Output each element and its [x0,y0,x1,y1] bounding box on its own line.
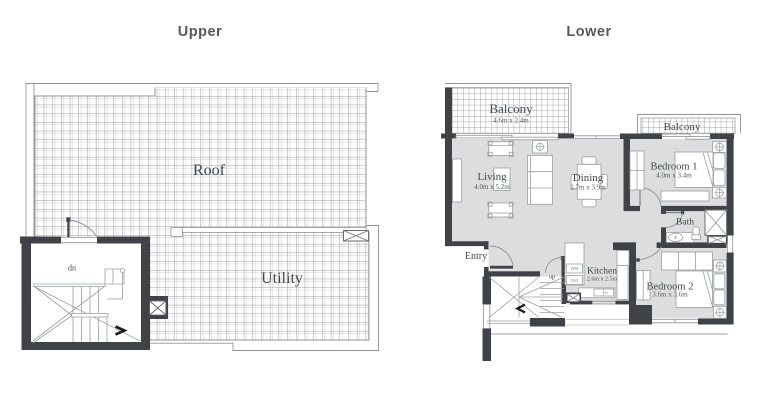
svg-text:Roof: Roof [193,162,226,179]
svg-text:3.6m x 3.6m: 3.6m x 3.6m [652,291,688,299]
svg-text:2.6m x 2.5m: 2.6m x 2.5m [587,277,618,283]
svg-text:Balcony: Balcony [664,121,701,133]
svg-text:Entry: Entry [465,251,487,262]
svg-text:Living: Living [477,171,507,183]
svg-text:Balcony: Balcony [489,101,533,116]
svg-text:Lower: Lower [566,24,611,40]
svg-text:Dining: Dining [573,172,604,184]
svg-text:WM: WM [571,266,579,271]
svg-text:DW: DW [571,278,579,283]
svg-text:up: up [549,274,556,281]
svg-text:Bath: Bath [676,218,694,228]
svg-text:4.0m x 3.4m: 4.0m x 3.4m [656,172,692,180]
svg-text:Kitchen: Kitchen [587,267,617,277]
svg-text:4.6m x 2.4m: 4.6m x 2.4m [493,117,529,125]
svg-text:dn: dn [68,264,76,273]
svg-text:Upper: Upper [178,24,222,40]
svg-text:Utility: Utility [261,270,303,287]
svg-text:2.7m x 3.9m: 2.7m x 3.9m [570,184,606,192]
svg-text:4.0m x 5.2m: 4.0m x 5.2m [474,183,510,191]
